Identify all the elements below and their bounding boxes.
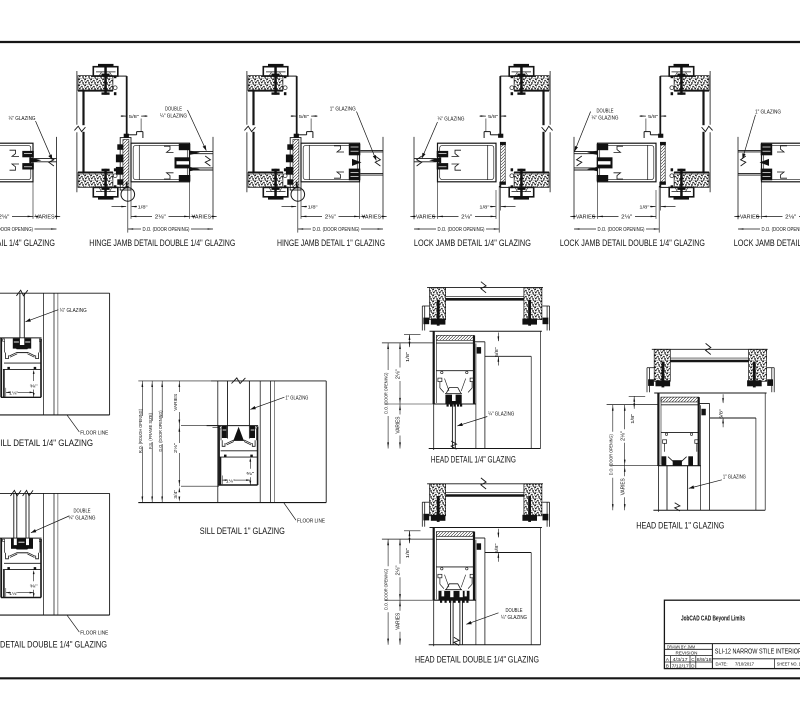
svg-text:8/8/18: 8/8/18: [697, 657, 713, 662]
svg-text:DOUBLE: DOUBLE: [506, 608, 523, 614]
svg-text:1/8": 1/8": [405, 352, 411, 362]
svg-text:1⅛": 1⅛": [226, 478, 235, 483]
svg-text:3/4": 3/4": [173, 489, 178, 498]
svg-text:1/8": 1/8": [308, 205, 318, 211]
svg-text:1/8": 1/8": [405, 548, 411, 558]
svg-text:2⅛": 2⅛": [173, 443, 179, 453]
svg-text:FLOOR LINE: FLOOR LINE: [80, 631, 108, 637]
svg-text:VARIES: VARIES: [396, 416, 402, 434]
svg-text:⅜": ⅜": [30, 584, 39, 589]
svg-text:VARIES: VARIES: [740, 215, 760, 221]
svg-text:D.O. (DOOR OPENING): D.O. (DOOR OPENING): [762, 227, 800, 233]
svg-text:2⅛": 2⅛": [0, 215, 9, 221]
svg-text:2⅛": 2⅛": [620, 431, 626, 441]
svg-text:SILL DETAIL DOUBLE 1/4" GLAZIN: SILL DETAIL DOUBLE 1/4" GLAZING: [0, 639, 107, 649]
svg-text:B: B: [666, 664, 669, 669]
svg-text:D.O. (DOOR OPENING): D.O. (DOOR OPENING): [608, 434, 614, 475]
svg-text:1" GLAZING: 1" GLAZING: [330, 106, 356, 112]
svg-text:SLI-12 NARROW STILE INTERIOR A: SLI-12 NARROW STILE INTERIOR AND: [715, 648, 800, 655]
svg-text:⅜": ⅜": [30, 383, 39, 388]
svg-text:DOUBLE: DOUBLE: [165, 106, 182, 112]
svg-text:HEAD DETAIL 1" GLAZING: HEAD DETAIL 1" GLAZING: [636, 521, 724, 531]
svg-text:HINGE JAMB DETAIL DOUBLE 1/4": HINGE JAMB DETAIL DOUBLE 1/4" GLAZING: [89, 238, 235, 248]
svg-text:¼" GLAZING: ¼" GLAZING: [9, 116, 36, 122]
svg-text:1/8": 1/8": [630, 413, 636, 423]
svg-text:DRAWN BY: JMM: DRAWN BY: JMM: [667, 644, 695, 649]
svg-text:1/8": 1/8": [639, 205, 649, 211]
svg-text:LOCK JAMB DETAIL DOUBLE 1/4" G: LOCK JAMB DETAIL DOUBLE 1/4" GLAZING: [560, 238, 705, 248]
svg-text:2⅛": 2⅛": [396, 565, 402, 575]
svg-text:JobCAD CAD Beyond Limits: JobCAD CAD Beyond Limits: [681, 613, 745, 622]
svg-text:¼" GLAZING: ¼" GLAZING: [592, 115, 619, 121]
svg-text:1⅛": 1⅛": [9, 391, 18, 396]
svg-text:LOCK JAMB DETAIL 1" GLAZING: LOCK JAMB DETAIL 1" GLAZING: [734, 238, 800, 248]
svg-text:2⅛": 2⅛": [461, 215, 472, 221]
svg-text:D.O. (DOOR OPENING): D.O. (DOOR OPENING): [598, 227, 645, 233]
svg-text:5/8": 5/8": [494, 543, 500, 553]
svg-text:7/12/17: 7/12/17: [672, 664, 690, 669]
svg-text:HINGE JAMB DETAIL 1/4" GLAZING: HINGE JAMB DETAIL 1/4" GLAZING: [0, 238, 55, 248]
svg-text:R.O. (ROUGH OPENING): R.O. (ROUGH OPENING): [138, 409, 144, 453]
svg-text:5/8": 5/8": [719, 409, 725, 419]
svg-text:5/8": 5/8": [488, 114, 498, 120]
svg-text:4/3/17: 4/3/17: [673, 657, 689, 662]
svg-text:A: A: [666, 657, 669, 662]
svg-text:FLOOR LINE: FLOOR LINE: [297, 519, 325, 525]
svg-text:D.O. (DOOR OPENING): D.O. (DOOR OPENING): [384, 372, 390, 413]
svg-text:VARIES: VARIES: [35, 215, 55, 221]
svg-text:2⅛": 2⅛": [785, 215, 796, 221]
svg-text:VARIES: VARIES: [173, 393, 179, 411]
svg-text:¼" GLAZING: ¼" GLAZING: [160, 113, 187, 119]
svg-text:1" GLAZING: 1" GLAZING: [755, 109, 781, 115]
svg-text:2⅛": 2⅛": [396, 369, 402, 379]
svg-text:DATE:: DATE:: [716, 661, 728, 667]
svg-text:1/8": 1/8": [479, 205, 489, 211]
svg-text:VARIES: VARIES: [396, 612, 402, 630]
svg-text:VARIES: VARIES: [620, 478, 626, 496]
svg-text:1" GLAZING: 1" GLAZING: [285, 395, 308, 401]
svg-text:SILL DETAIL 1/4" GLAZING: SILL DETAIL 1/4" GLAZING: [0, 438, 93, 448]
svg-text:HINGE JAMB DETAIL 1" GLAZING: HINGE JAMB DETAIL 1" GLAZING: [277, 238, 385, 248]
svg-text:SILL DETAIL 1" GLAZING: SILL DETAIL 1" GLAZING: [200, 526, 285, 536]
svg-text:LOCK JAMB DETAIL 1/4" GLAZING: LOCK JAMB DETAIL 1/4" GLAZING: [414, 238, 531, 248]
svg-text:¼" GLAZING: ¼" GLAZING: [501, 615, 527, 621]
svg-text:VARIES: VARIES: [416, 215, 436, 221]
svg-text:5/8": 5/8": [299, 114, 309, 120]
svg-text:⅜": ⅜": [246, 471, 255, 476]
svg-text:1⅛": 1⅛": [9, 591, 18, 596]
svg-text:SHEET NO. 1: SHEET NO. 1: [777, 661, 800, 667]
svg-text:D.O. (DOOR OPENING): D.O. (DOOR OPENING): [0, 227, 33, 233]
svg-text:HEAD DETAIL 1/4" GLAZING: HEAD DETAIL 1/4" GLAZING: [431, 455, 516, 465]
svg-text:¼" GLAZING: ¼" GLAZING: [69, 515, 96, 521]
svg-text:5/8": 5/8": [129, 114, 139, 120]
svg-text:D.O. (DOOR OPENING): D.O. (DOOR OPENING): [438, 227, 485, 233]
svg-text:¼" GLAZING: ¼" GLAZING: [438, 117, 465, 123]
svg-text:D.O. (DOOR OPENING): D.O. (DOOR OPENING): [158, 410, 164, 451]
svg-text:VARIES: VARIES: [576, 215, 596, 221]
svg-text:1/8": 1/8": [138, 205, 148, 211]
svg-text:REVISION: REVISION: [676, 651, 698, 656]
svg-text:7/10/2017: 7/10/2017: [735, 661, 754, 667]
svg-text:HEAD DETAIL DOUBLE 1/4" GLAZIN: HEAD DETAIL DOUBLE 1/4" GLAZING: [415, 655, 539, 665]
svg-text:VARIES: VARIES: [362, 215, 382, 221]
svg-text:2⅛": 2⅛": [155, 215, 166, 221]
svg-text:2⅛": 2⅛": [621, 215, 632, 221]
svg-text:2⅛": 2⅛": [325, 215, 336, 221]
svg-text:D.O. (DOOR OPENING): D.O. (DOOR OPENING): [143, 227, 190, 233]
svg-text:¼" GLAZING: ¼" GLAZING: [60, 308, 87, 314]
svg-text:VARIES: VARIES: [192, 215, 212, 221]
svg-text:FLOOR LINE: FLOOR LINE: [80, 430, 108, 436]
svg-text:DOUBLE: DOUBLE: [74, 508, 91, 514]
svg-text:5/8": 5/8": [648, 114, 658, 120]
svg-text:¼" GLAZING: ¼" GLAZING: [488, 411, 514, 417]
svg-text:F.S. (FRAME SIZE): F.S. (FRAME SIZE): [148, 413, 154, 449]
svg-text:DOUBLE: DOUBLE: [597, 108, 614, 114]
svg-text:D.O. (DOOR OPENING): D.O. (DOOR OPENING): [313, 227, 360, 233]
svg-text:D.O. (DOOR OPENING): D.O. (DOOR OPENING): [384, 569, 390, 610]
svg-text:5/8": 5/8": [494, 347, 500, 357]
svg-text:1" GLAZING: 1" GLAZING: [723, 474, 746, 480]
